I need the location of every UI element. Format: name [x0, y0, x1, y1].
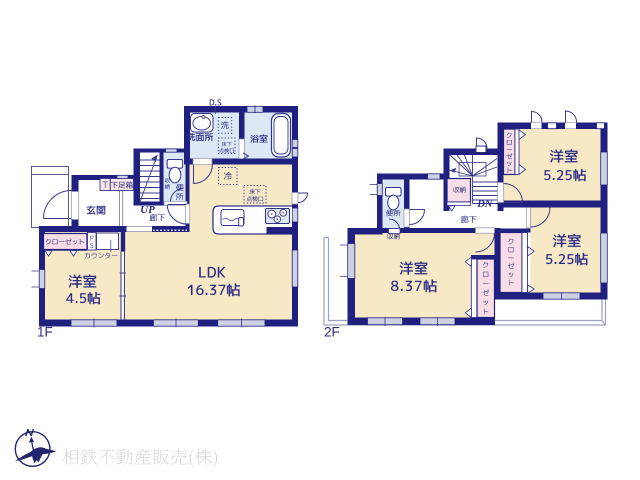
svg-text:UP: UP [140, 204, 155, 216]
svg-text:2F: 2F [324, 325, 340, 340]
svg-text:1F: 1F [37, 325, 53, 340]
svg-text:DN: DN [476, 199, 493, 210]
